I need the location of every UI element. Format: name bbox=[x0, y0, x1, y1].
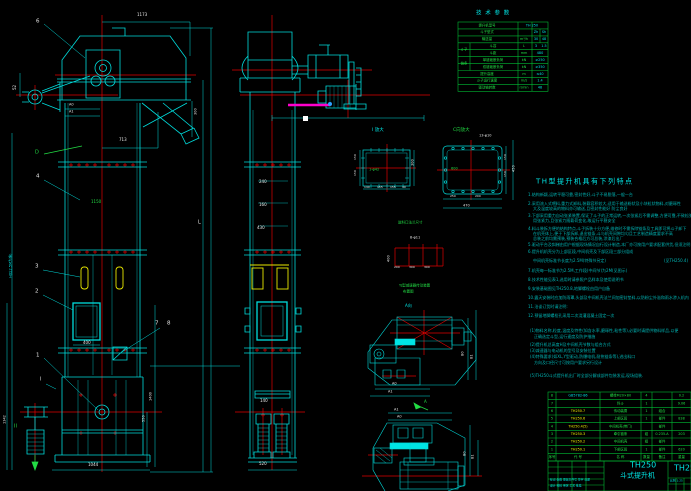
plan-a-bright-bar bbox=[395, 339, 415, 345]
takeup-arrow bbox=[32, 462, 38, 470]
white-square-marker bbox=[303, 116, 308, 121]
drawing-linework bbox=[0, 0, 691, 491]
centerlines bbox=[16, 15, 510, 476]
plan-b-bright-bar bbox=[390, 443, 428, 449]
detail-c-view bbox=[443, 140, 513, 208]
left-elevation-view bbox=[7, 22, 240, 472]
dimension-lines bbox=[7, 22, 240, 472]
table-grids bbox=[458, 22, 691, 491]
bom-table-grid bbox=[548, 392, 691, 461]
title-block-grid bbox=[548, 461, 691, 491]
blue-blob bbox=[328, 102, 332, 106]
cad-drawing-page: 1173713A0A152400104414005501342H(以2.5M为准… bbox=[0, 0, 691, 491]
a-view-arrow bbox=[414, 403, 421, 409]
inlet-flange-outline bbox=[395, 244, 443, 266]
green-marks bbox=[32, 146, 428, 470]
plan-views bbox=[368, 310, 478, 491]
middle-elevation-view bbox=[240, 32, 424, 470]
access-door bbox=[73, 303, 100, 340]
